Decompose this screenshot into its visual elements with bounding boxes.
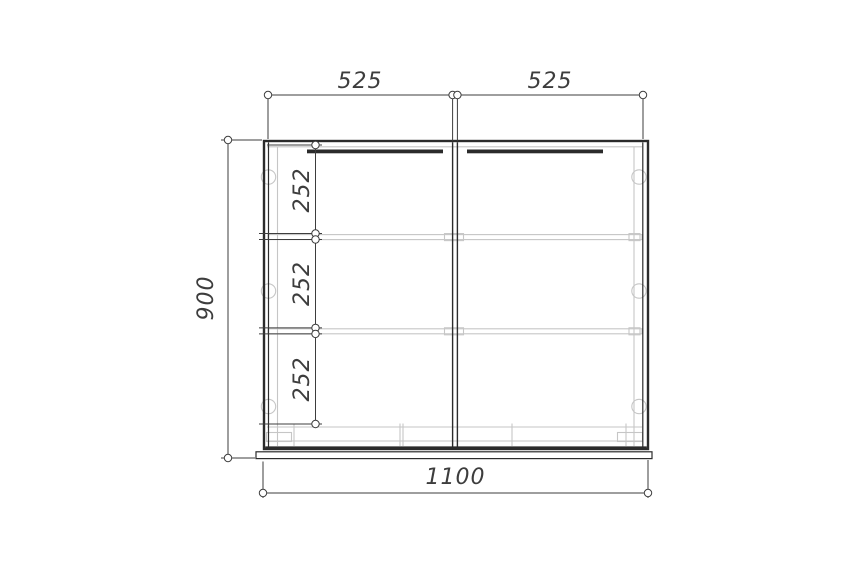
dim-height-label: 900 [194, 276, 219, 321]
dim-terminator [312, 420, 319, 427]
drawing-canvas: 525 525 900 252 252 252 1100 [0, 0, 856, 571]
dim-terminator [312, 236, 319, 243]
dim-terminator [312, 330, 319, 337]
base-strip-fill [256, 452, 652, 459]
right-door-handle [467, 150, 603, 154]
left-door-handle [307, 150, 443, 154]
dim-top-left-label: 525 [338, 69, 383, 94]
dim-terminator [454, 91, 461, 98]
dim-section3-label: 252 [290, 357, 315, 402]
dim-terminator [639, 91, 646, 98]
dim-terminator [224, 136, 231, 143]
dim-terminator [644, 489, 651, 496]
dim-width-label: 1100 [426, 465, 486, 490]
dim-section1-label: 252 [290, 168, 315, 213]
cabinet-body-fill [264, 141, 648, 449]
dim-top-right-label: 525 [528, 69, 573, 94]
dim-section2-label: 252 [290, 261, 315, 306]
dim-terminator [264, 91, 271, 98]
dim-terminator [259, 489, 266, 496]
dim-terminator [312, 141, 319, 148]
cabinet-technical-drawing: 525 525 900 252 252 252 1100 [0, 0, 856, 571]
dim-terminator [224, 454, 231, 461]
